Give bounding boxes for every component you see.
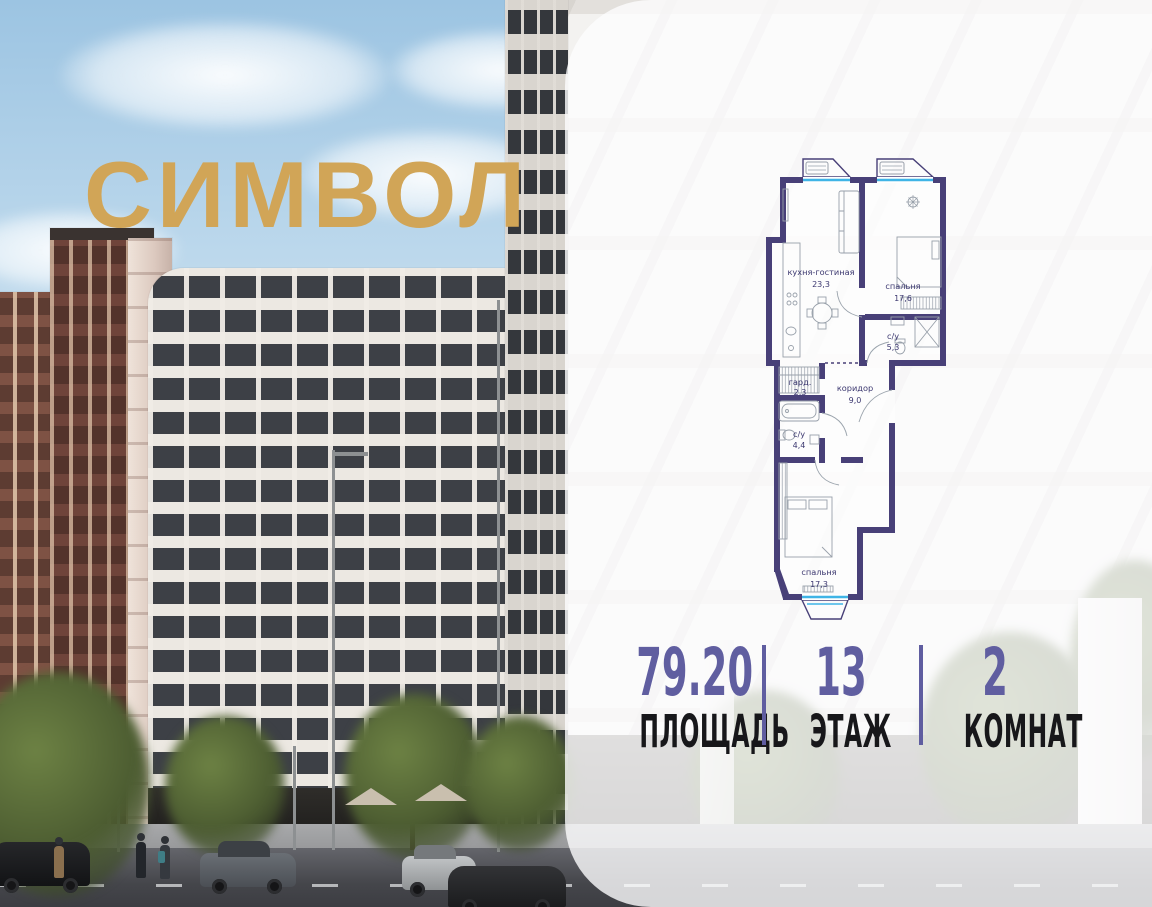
stat-area-value: 79.20	[636, 640, 726, 706]
stat-floor: 13 ЭТАЖ	[781, 640, 901, 756]
stat-rooms: 2 КОМНАТ	[935, 640, 1055, 756]
stat-divider	[919, 645, 923, 745]
room-label: с/у	[887, 331, 899, 341]
car	[448, 866, 566, 907]
stat-area-label: ПЛОЩАДЬ	[639, 708, 722, 756]
balcony-bottom	[802, 600, 848, 619]
room-label: спальня	[885, 281, 920, 291]
tree	[465, 716, 575, 851]
room-label: гард.	[789, 377, 812, 387]
room-label: кухня-гостиная	[787, 267, 854, 277]
room-label: с/у	[793, 429, 805, 439]
room-area: 23,3	[812, 280, 830, 289]
cafe-umbrella	[415, 784, 467, 801]
info-panel: кухня-гостиная 23,3 спальня 17,6 с/у 5,3…	[565, 0, 1152, 907]
pedestrian	[136, 842, 146, 878]
listing-card[interactable]: СИМВОЛ	[0, 0, 1152, 907]
room-area: 17,6	[894, 294, 912, 303]
stat-area: 79.20 ПЛОЩАДЬ	[601, 640, 761, 756]
street-light-pole	[293, 746, 296, 850]
stats-row: 79.20 ПЛОЩАДЬ 13 ЭТАЖ 2 КОМНАТ	[565, 640, 1152, 760]
tree	[345, 694, 485, 859]
car	[0, 842, 90, 886]
room-area: 2,3	[794, 388, 807, 397]
cafe-umbrella	[345, 788, 397, 805]
room-area: 17,3	[810, 580, 828, 589]
room-area: 9,0	[849, 396, 862, 405]
tree	[165, 716, 285, 856]
brand-logo: СИМВОЛ	[84, 148, 530, 242]
stat-divider	[762, 645, 766, 745]
street-light-arm	[332, 452, 368, 456]
stat-floor-value: 13	[807, 640, 874, 706]
stat-rooms-value: 2	[961, 640, 1028, 706]
street-light-pole	[332, 450, 335, 850]
room-label: коридор	[837, 383, 873, 393]
room-area: 5,3	[887, 343, 900, 352]
stat-floor-label: ЭТАЖ	[810, 708, 872, 756]
pedestrian	[54, 846, 64, 878]
room-area: 4,4	[793, 441, 806, 450]
stat-rooms-label: КОМНАТ	[964, 708, 1026, 756]
cloud	[60, 20, 390, 130]
car	[200, 853, 296, 887]
pedestrian	[160, 845, 170, 879]
balcony-top-left	[803, 159, 850, 177]
room-label: спальня	[801, 567, 836, 577]
balcony-top-right	[877, 159, 933, 177]
floorplan: кухня-гостиная 23,3 спальня 17,6 с/у 5,3…	[755, 145, 965, 625]
